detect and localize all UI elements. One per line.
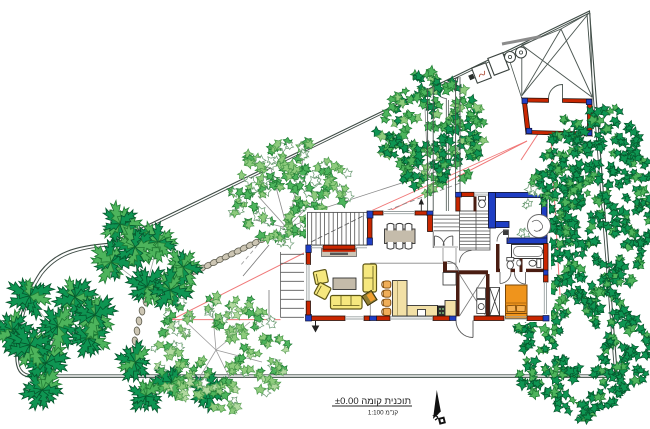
svg-text:±0.00 תוכנית קומה: ±0.00 תוכנית קומה	[335, 396, 411, 407]
svg-text:קנ"מ 1:100: קנ"מ 1:100	[368, 410, 399, 417]
